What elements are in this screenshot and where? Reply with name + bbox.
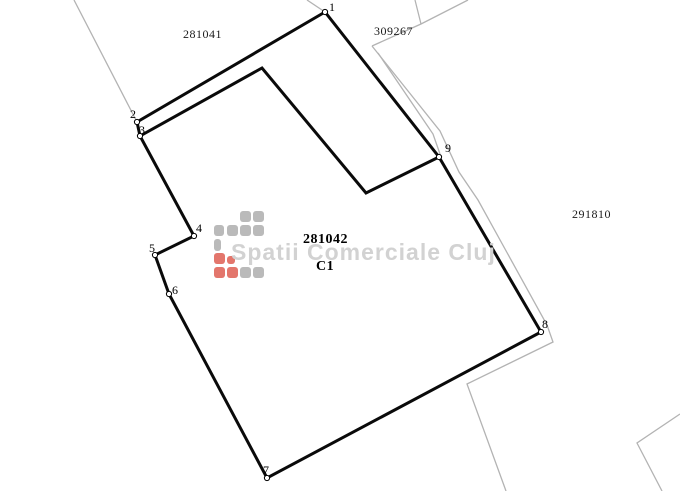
cadastral-map: Spatii Comerciale Cluj 281041 309267 291… <box>0 0 680 491</box>
vertex-label-2: 2 <box>130 107 136 122</box>
logo-square-2 <box>253 211 264 222</box>
neighbor-parcel-line-2 <box>307 0 325 12</box>
logo-square-5 <box>240 225 251 236</box>
logo-square-1 <box>240 211 251 222</box>
logo-square-11 <box>227 267 238 278</box>
building-label-c1: C1 <box>316 259 334 275</box>
logo-square-8 <box>214 253 225 264</box>
watermark-text: Spatii Comerciale Cluj <box>231 239 496 266</box>
vertex-label-3: 3 <box>139 123 145 138</box>
neighbor-parcel-line-3 <box>415 0 421 24</box>
parcel-label-281041: 281041 <box>183 27 222 42</box>
vertex-label-5: 5 <box>149 241 155 256</box>
logo-square-13 <box>253 267 264 278</box>
logo-square-7 <box>214 239 221 251</box>
vertex-label-8: 8 <box>542 317 548 332</box>
vertex-label-4: 4 <box>196 221 202 236</box>
vertex-marker-1 <box>322 9 327 14</box>
neighbor-parcel-line-7 <box>637 414 680 491</box>
parcel-label-309267: 309267 <box>374 24 413 39</box>
logo-square-12 <box>240 267 251 278</box>
logo-square-3 <box>214 225 224 236</box>
vertex-marker-9 <box>436 154 441 159</box>
vertex-marker-6 <box>166 291 171 296</box>
vertex-label-1: 1 <box>329 0 335 15</box>
vertex-label-7: 7 <box>263 463 269 478</box>
logo-square-6 <box>253 225 264 236</box>
logo-square-4 <box>227 225 238 236</box>
vertex-label-6: 6 <box>172 283 178 298</box>
vertex-label-9: 9 <box>445 141 451 156</box>
parcel-label-291810: 291810 <box>572 207 611 222</box>
neighbor-parcel-line-4 <box>372 0 468 46</box>
logo-square-10 <box>214 267 225 278</box>
neighbor-parcel-line-6 <box>378 53 440 154</box>
neighbor-parcel-line-1 <box>74 0 137 122</box>
building-c1-outline <box>140 68 439 193</box>
parcel-label-281042: 281042 <box>303 232 348 248</box>
neighbor-parcel-line-5 <box>372 46 553 491</box>
